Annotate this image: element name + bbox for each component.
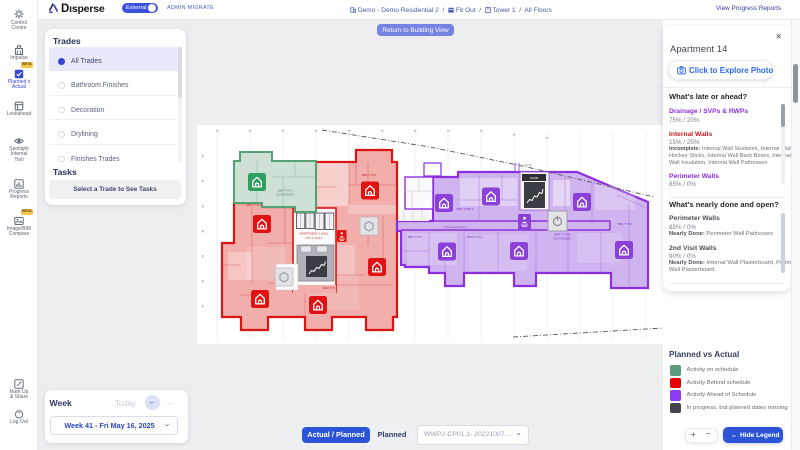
svg-text:8BR TYP.A: 8BR TYP.A [468, 235, 483, 239]
svg-text:6BR TYPE 3: 6BR TYPE 3 [457, 207, 474, 211]
svg-text:8BR TYP.1: 8BR TYP.1 [408, 235, 423, 239]
svg-text:CommunalCorridor: CommunalCorridor [443, 225, 467, 229]
svg-text:LIFT 1 / LIFT 2: LIFT 1 / LIFT 2 [305, 236, 323, 240]
svg-text:6BR TYP.3: 6BR TYP.3 [362, 173, 377, 177]
svg-text:STAIR: STAIR [530, 176, 539, 180]
svg-text:ROOF: ROOF [524, 163, 532, 167]
svg-text:6BR TYP.4: 6BR TYP.4 [618, 222, 633, 226]
svg-text:APARTMENT 1 HALL: APARTMENT 1 HALL [299, 232, 328, 236]
svg-text:8BR TYP.W: 8BR TYP.W [554, 233, 570, 237]
svg-text:(ACCESSIBLE): (ACCESSIBLE) [276, 193, 294, 197]
svg-text:(ACCESSIBLE): (ACCESSIBLE) [553, 237, 571, 241]
svg-text:6BR TYP.2: 6BR TYP.2 [323, 286, 338, 290]
svg-text:6BR TYP.2: 6BR TYP.2 [278, 189, 293, 193]
